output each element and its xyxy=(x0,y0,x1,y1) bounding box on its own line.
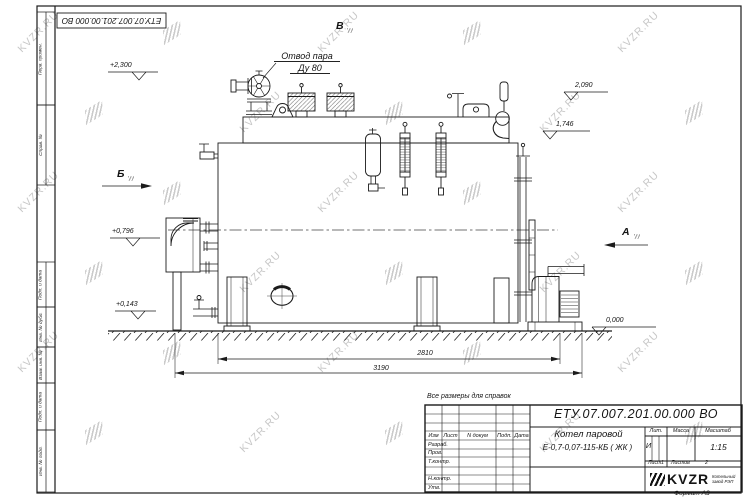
text-layer: ЕТУ.07.007.201.00.000 ВО Перв. примен. С… xyxy=(0,0,750,500)
margin-label-vzam-inv: Взам. инв. № xyxy=(37,349,47,381)
format-label: Формат А3 xyxy=(674,490,710,497)
level-2300: +2,300 xyxy=(110,62,132,70)
sheet-label: Лист xyxy=(648,461,661,467)
col-data: Дата xyxy=(513,433,530,439)
margin-label-perv-primen: Перв. примен. xyxy=(37,14,47,103)
view-label-b: Б xyxy=(117,168,124,180)
row-razrab: Разраб. xyxy=(428,442,448,448)
view-mark-icon xyxy=(634,234,640,239)
doc-number-top: ЕТУ.07.007.201.00.000 ВО xyxy=(57,13,166,28)
title-block-doc-number: ЕТУ.07.007.201.00.000 ВО xyxy=(532,407,740,421)
level-0000: 0,000 xyxy=(606,317,624,325)
level-0143: +0,143 xyxy=(116,301,138,309)
view-label-v: В xyxy=(336,20,344,32)
steam-dn-label: Ду 80 xyxy=(290,63,330,74)
sheets-label: Листов xyxy=(671,461,690,467)
view-mark-icon xyxy=(128,176,134,181)
reference-note: Все размеры для справок xyxy=(427,393,511,401)
level-2090: 2,090 xyxy=(575,82,593,90)
scale-label: Масштаб xyxy=(694,428,742,434)
level-1746: 1,746 xyxy=(556,121,574,129)
kvzr-logo-icon xyxy=(650,473,665,486)
kvzr-brand-subtext: Котельный завод РЭП xyxy=(712,474,740,484)
margin-label-podp-data-2: Подп. и дата xyxy=(37,385,47,428)
col-podp: Подп. xyxy=(496,433,513,439)
lit-label: Лит. xyxy=(645,428,667,434)
sheet-value: 1 xyxy=(661,461,664,467)
drawing-sheet: KVZR.RUKVZR.RUKVZR.RUKVZR.RUKVZR.RUKVZR.… xyxy=(0,0,750,500)
product-name-line1: Котел паровой xyxy=(532,430,645,441)
dim-3190: 3190 xyxy=(364,365,398,373)
row-utv: Утв. xyxy=(428,485,441,491)
margin-label-inv-dubl: Инв. № дубл. xyxy=(37,309,47,345)
margin-label-inv-podl: Инв. № подл. xyxy=(37,432,47,490)
margin-label-podp-data-1: Подп. и дата xyxy=(37,264,47,305)
dim-2810: 2810 xyxy=(408,350,442,358)
lit-value: И xyxy=(645,442,652,451)
product-name-line2: Е-0,7-0,07-115-КБ ( ЖК ) xyxy=(530,443,645,452)
sheets-value: 2 xyxy=(705,461,708,467)
row-nkontr: Н.контр. xyxy=(428,476,451,482)
steam-outlet-label: Отвод пара xyxy=(274,51,340,62)
margin-label-sprav-no: Справ. № xyxy=(37,107,47,183)
level-0796: +0,796 xyxy=(112,228,134,236)
view-label-a: А xyxy=(622,226,630,238)
col-izm: Изм xyxy=(425,433,442,439)
col-ndokum: N докум xyxy=(459,433,496,439)
mass-label: Масса xyxy=(667,428,695,434)
view-mark-icon xyxy=(347,28,353,33)
scale-value: 1:15 xyxy=(695,443,742,453)
kvzr-brand: KVZR xyxy=(667,471,709,487)
col-list: Лист xyxy=(442,433,459,439)
row-tkontr: Т.контр. xyxy=(428,459,450,465)
row-prov: Пров. xyxy=(428,450,443,456)
